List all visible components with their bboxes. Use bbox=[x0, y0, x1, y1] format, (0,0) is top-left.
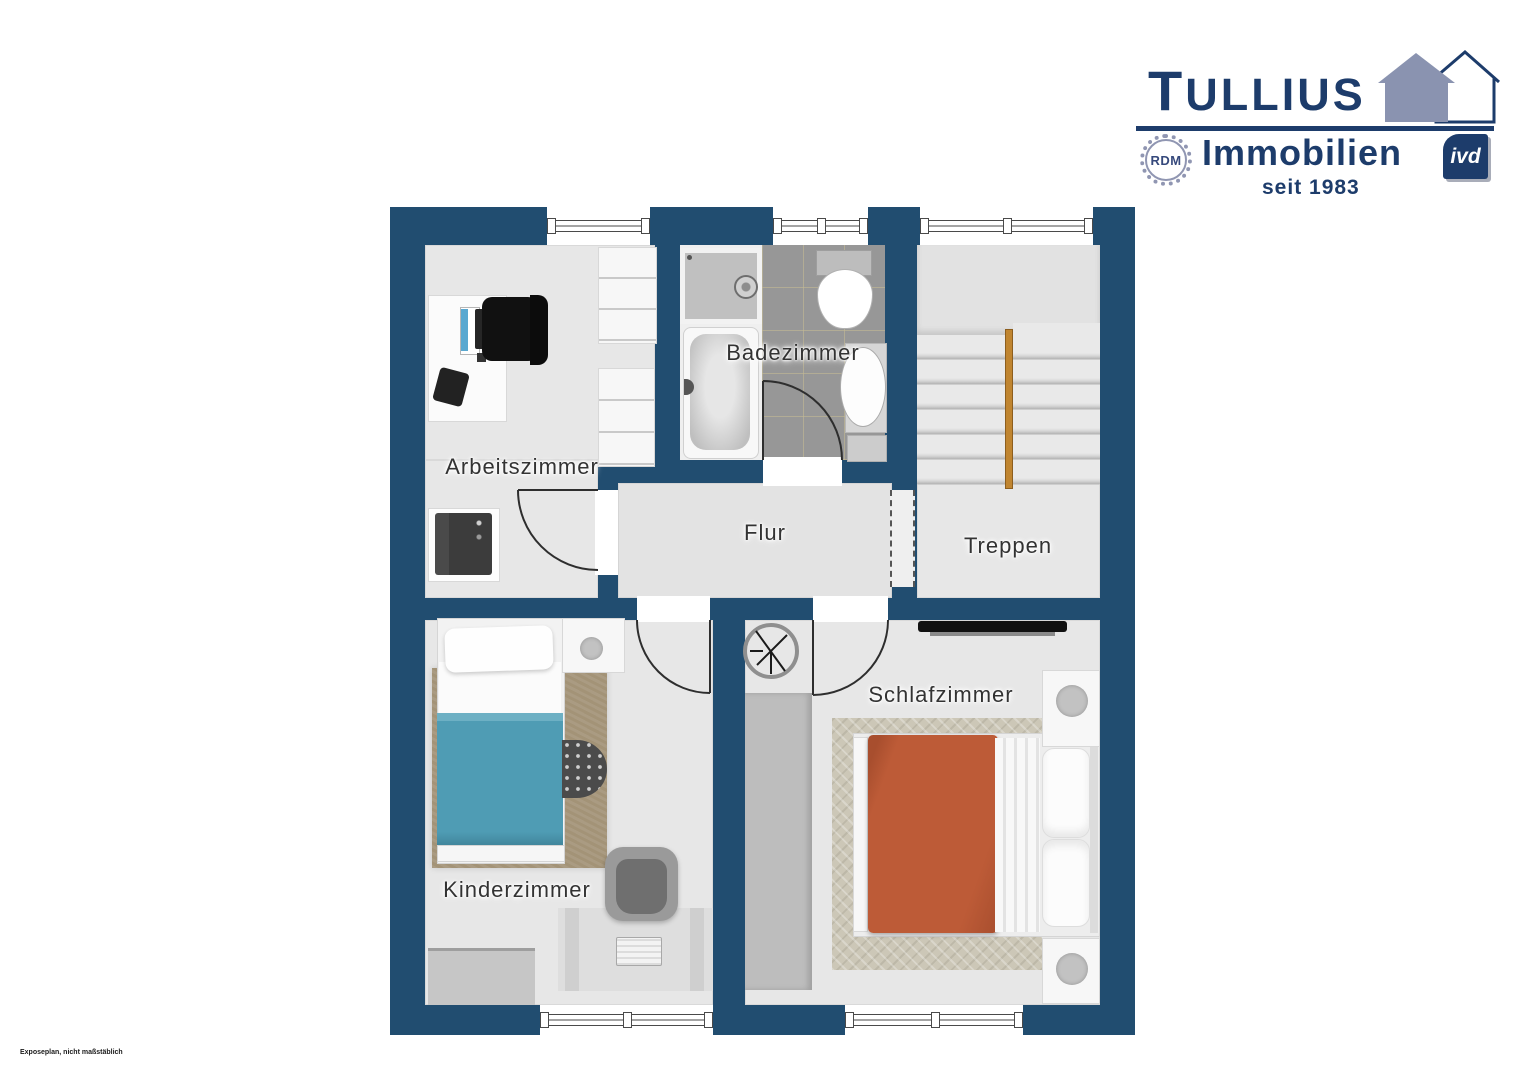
brand-logo: TULLIUS RDM Immobilien ivd seit 1983 bbox=[1128, 50, 1500, 208]
page: TULLIUS RDM Immobilien ivd seit 1983 bbox=[0, 0, 1528, 1080]
logo-line2: Immobilien bbox=[1202, 132, 1402, 174]
label-treppen: Treppen bbox=[964, 533, 1052, 559]
floor-plan: Arbeitszimmer Badezimmer Treppen Flur Ki… bbox=[390, 207, 1135, 1035]
label-flur: Flur bbox=[744, 520, 786, 546]
door-badezimmer bbox=[763, 381, 842, 460]
label-arbeitszimmer: Arbeitszimmer bbox=[445, 454, 599, 480]
brand-rest: ULLIUS bbox=[1185, 69, 1366, 120]
ivd-text: ivd bbox=[1450, 145, 1480, 169]
label-badezimmer: Badezimmer bbox=[726, 340, 859, 366]
ceiling-fan-icon bbox=[745, 625, 797, 677]
ivd-badge-icon: ivd bbox=[1443, 134, 1488, 179]
door-kinderzimmer bbox=[637, 620, 710, 693]
brand-initial: T bbox=[1148, 59, 1185, 122]
door-swing-overlay bbox=[390, 207, 1135, 1035]
rdm-text: RDM bbox=[1150, 153, 1181, 168]
logo-divider bbox=[1136, 126, 1494, 131]
houses-icon bbox=[1376, 50, 1500, 124]
plan-disclaimer: Exposeplan, nicht maßstäblich bbox=[20, 1049, 123, 1056]
brand-wordmark: TULLIUS bbox=[1148, 58, 1366, 123]
rdm-seal-icon: RDM bbox=[1140, 134, 1192, 186]
door-arbeitszimmer bbox=[518, 490, 598, 570]
label-kinderzimmer: Kinderzimmer bbox=[443, 877, 591, 903]
logo-line3: seit 1983 bbox=[1262, 176, 1360, 200]
label-schlafzimmer: Schlafzimmer bbox=[868, 682, 1013, 708]
